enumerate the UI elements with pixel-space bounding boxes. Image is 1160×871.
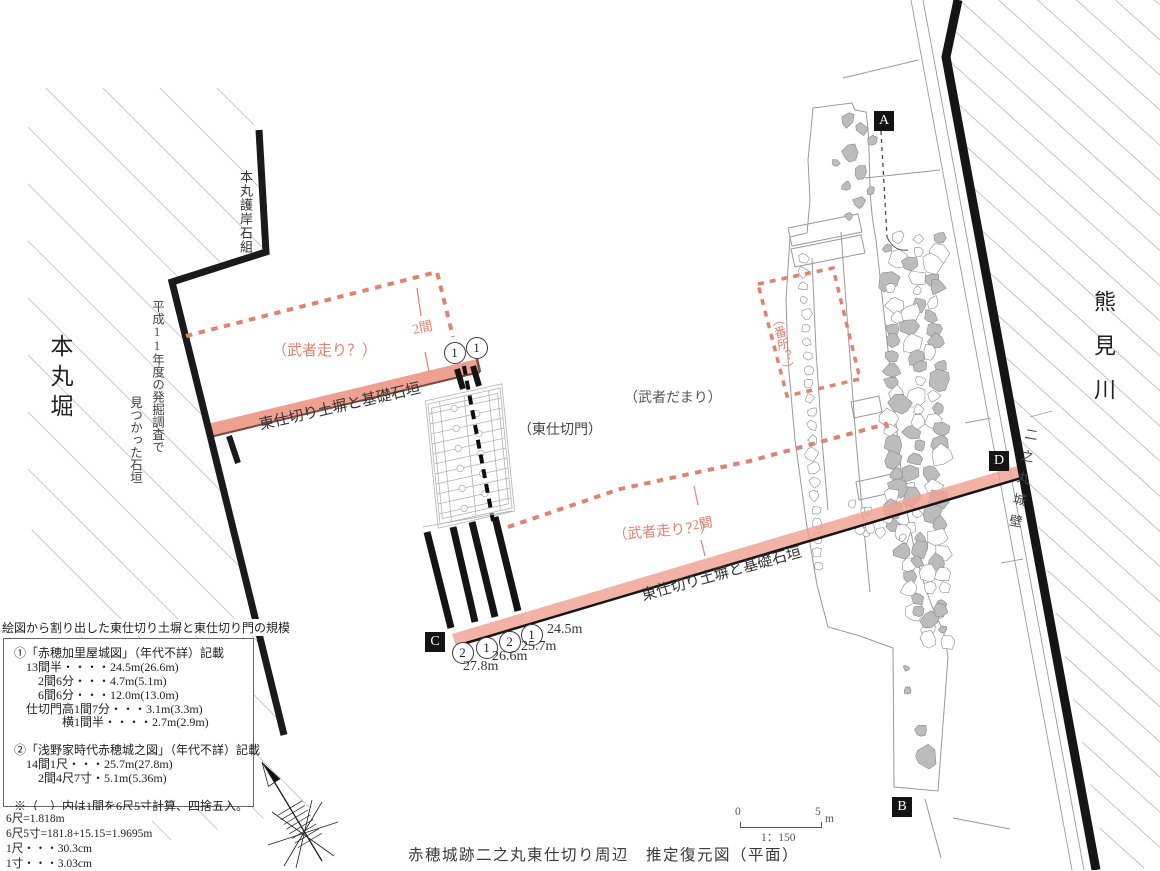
compass-rose [262, 762, 338, 868]
label-excavation-note-2: 見つかった石垣 [126, 396, 145, 484]
scale-rule [740, 822, 822, 828]
label-musha-bashiri-upper: （武者走り？） [272, 339, 377, 360]
info-line: 2間6分・・・4.7m(5.1m) [14, 672, 253, 686]
info-line: ※（ ）内は1間を6尺5寸計算、四捨五入。 [14, 797, 253, 811]
marker-a: A [874, 111, 894, 131]
label-span-upper: 2間 [410, 314, 434, 338]
info-line: 横1間半・・・・2.7m(2.9m) [14, 713, 253, 727]
label-honmaru-moat: 本丸堀 [42, 334, 76, 424]
info-line: 仕切門高1間7分・・・3.1m(3.3m) [14, 700, 253, 714]
label-honmaru-revetment: 本丸護岸石組 [236, 170, 255, 254]
info-line: ②「浅野家時代赤穂城之図」（年代不詳）記載 [14, 741, 253, 755]
marker-d: D [989, 451, 1009, 471]
label-excavation-note-1: 平成11年度の発掘調査で [148, 300, 167, 453]
info-box-heading: 絵図から割り出した東仕切り土塀と東仕切り門の規模 [0, 619, 292, 636]
label-east-gate: （東仕切門） [518, 419, 602, 439]
conversion-line: 6尺=1.818m [6, 810, 152, 825]
marker-c: C [425, 632, 445, 652]
conversion-line: 6尺5寸=181.8+15.15=1.9695m [6, 825, 152, 840]
label-musha-damari: （武者だまり） [624, 387, 722, 407]
ref-circle-upper-1: 1 [444, 342, 466, 364]
marker-b: B [892, 797, 912, 817]
scale-unit: m [825, 813, 834, 825]
scale-start: 0 [735, 806, 741, 818]
scale-end: 5 [815, 806, 821, 818]
drawing-title: 赤穂城跡二之丸東仕切り周辺 推定復元図（平面） [408, 843, 799, 865]
label-span-lower: 2間 [690, 510, 713, 533]
info-line: 14間1尺・・・25.7m(27.8m) [14, 755, 253, 769]
scale-bar: 0 5 m 1：150 [735, 806, 845, 842]
conversion-line: 1寸・・・3.03cm [6, 855, 152, 870]
measurement-24-5: 24.5m [547, 622, 582, 638]
info-line: ①「赤穂加里屋城図」（年代不詳）記載 [14, 644, 253, 658]
plan-drawing-stage: 絵図から割り出した東仕切り土塀と東仕切り門の規模 ①「赤穂加里屋城図」（年代不詳… [0, 0, 1160, 870]
info-line: 2間4尺7寸・5.1m(5.36m) [14, 769, 253, 783]
ref-circle-upper-2: 1 [466, 337, 488, 359]
unit-conversion-notes: 6尺=1.818m 6尺5寸=181.8+15.15=1.9695m 1尺・・・… [6, 810, 152, 870]
wall-stub-lines [427, 366, 518, 628]
conversion-line: 1尺・・・30.3cm [6, 840, 152, 855]
info-box: ①「赤穂加里屋城図」（年代不詳）記載 13間半・・・・24.5m(26.6m) … [3, 638, 254, 807]
measurement-25-7: 25.7m [521, 639, 556, 655]
east-gate-structure [426, 384, 515, 528]
info-line [14, 727, 253, 741]
section-line-a [881, 131, 908, 250]
info-line: 6間6分・・・12.0m(13.0m) [14, 686, 253, 700]
river-bank-lines [911, 0, 1084, 870]
label-kumami-river: 熊見川 [1087, 290, 1119, 422]
